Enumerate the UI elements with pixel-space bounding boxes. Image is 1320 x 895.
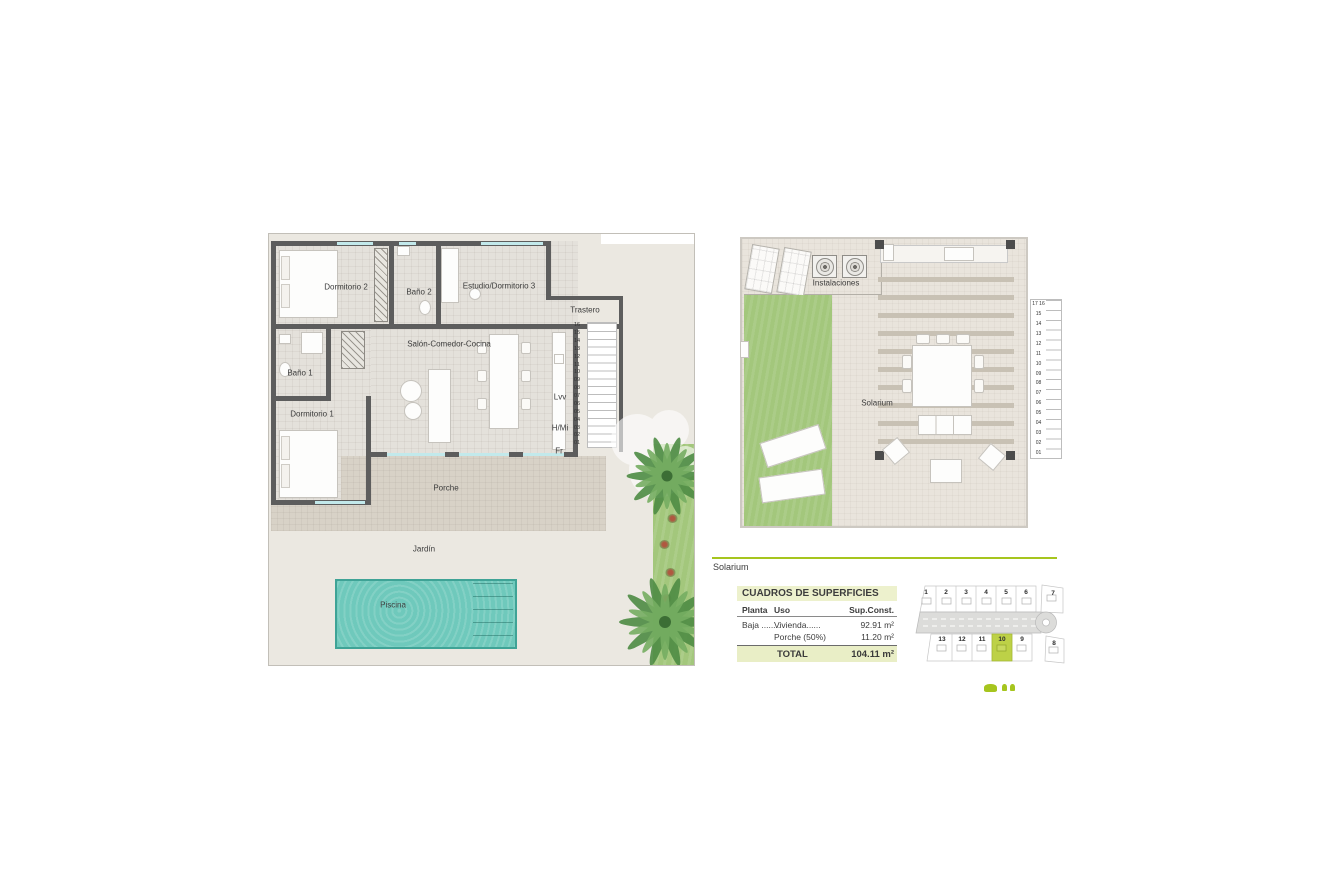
pool xyxy=(335,579,517,649)
chair xyxy=(956,334,970,344)
kitchen-sink xyxy=(554,354,564,364)
pergola-post xyxy=(875,240,884,249)
wall xyxy=(366,396,371,505)
area-label-jardin: Jardín xyxy=(413,545,435,554)
door-marker xyxy=(883,244,894,261)
stair-step-number: 03 xyxy=(1031,428,1046,438)
palm-tree-icon xyxy=(621,430,695,522)
appliance-label-dishwasher: Lvv xyxy=(554,393,566,402)
surface-table-header: CUADROS DE SUPERFICIES xyxy=(737,586,897,601)
stair-step-number: 05 xyxy=(569,409,585,417)
ac-unit-icon xyxy=(812,255,837,278)
room-label-estudio-dormitorio-3: Estudio/Dormitorio 3 xyxy=(463,282,535,291)
pillow xyxy=(281,436,290,460)
coffee-table xyxy=(930,459,962,483)
stair-step-number: 11 xyxy=(569,361,585,369)
room-label-dormitorio-1: Dormitorio 1 xyxy=(290,410,334,419)
door-marker xyxy=(740,341,749,358)
stair-step-number: 15 xyxy=(1031,310,1046,320)
plots-top-row xyxy=(920,586,1036,612)
solarium-plan: 17 16151413121110090807060504030201 Inst… xyxy=(740,237,1062,535)
outdoor-sink xyxy=(944,247,974,261)
fan-icon xyxy=(816,258,834,276)
chair xyxy=(477,398,487,410)
sliding-door-glass xyxy=(387,453,445,456)
room-label-trastero: Trastero xyxy=(570,306,600,315)
chair xyxy=(902,379,912,393)
stair-step-number: 07 xyxy=(569,393,585,401)
stair-step-number: 01 xyxy=(1031,448,1046,458)
stair-step-number: 14 xyxy=(1031,320,1046,330)
plot-number: 1 xyxy=(920,589,932,596)
site-plan: 1 2 3 4 5 6 7 13 12 11 10 9 8 xyxy=(915,583,1065,665)
stair-step-number: 04 xyxy=(1031,419,1046,429)
area-label-piscina: Piscina xyxy=(380,601,406,610)
plot-number-highlighted: 10 xyxy=(996,636,1008,643)
ac-unit-icon xyxy=(842,255,867,278)
cropped-logo-mark-icon xyxy=(1002,684,1007,691)
plot-number: 7 xyxy=(1047,590,1059,597)
stair-step-number: 02 xyxy=(569,432,585,440)
chair xyxy=(521,342,531,354)
pillow xyxy=(281,284,290,308)
outdoor-dining-table xyxy=(912,345,972,407)
row-uso: Porche (50%) xyxy=(774,632,826,642)
col-header-sup-const: Sup.Const. xyxy=(849,605,894,615)
wall xyxy=(271,241,276,505)
stair-step-number: 08 xyxy=(1031,379,1046,389)
room-label-bano-2: Baño 2 xyxy=(406,288,431,297)
stair-step-number: 06 xyxy=(1031,399,1046,409)
appliance-label-oven-micro: H/Mi xyxy=(552,424,568,433)
col-header-planta: Planta xyxy=(742,605,768,615)
stair-step-number: 04 xyxy=(569,417,585,425)
outdoor-sofa xyxy=(918,415,972,435)
wall xyxy=(271,396,331,401)
stair-step-number: 16 xyxy=(569,322,585,330)
stair-step-number: 05 xyxy=(1031,409,1046,419)
room-label-solarium: Solarium xyxy=(861,399,893,408)
room-label-instalaciones: Instalaciones xyxy=(813,279,860,288)
col-header-uso: Uso xyxy=(774,605,790,615)
stair-step-number: 03 xyxy=(569,424,585,432)
chair xyxy=(521,370,531,382)
wall xyxy=(371,452,387,457)
wall xyxy=(509,452,523,457)
area-label-porche: Porche xyxy=(433,484,458,493)
window xyxy=(481,242,543,245)
wardrobe xyxy=(341,331,365,369)
plot-number: 8 xyxy=(1048,640,1060,647)
window xyxy=(399,242,416,245)
cropped-logo-mark-icon xyxy=(1010,684,1015,691)
porch-area xyxy=(341,456,606,531)
porch-area-left xyxy=(271,505,341,531)
stair-step-number: 02 xyxy=(1031,438,1046,448)
stair-step-number: 06 xyxy=(569,401,585,409)
window xyxy=(315,501,365,504)
stair-step-number: 14 xyxy=(569,338,585,346)
round-table xyxy=(400,380,422,402)
floorplan-sheet: 16151413121110090807060504030201 xyxy=(0,0,1320,895)
round-table xyxy=(404,402,422,420)
cropped-logo-mark-icon xyxy=(984,684,997,692)
surface-table-title: CUADROS DE SUPERFICIES xyxy=(742,588,879,599)
row-sup: 92.91 m² xyxy=(860,620,894,630)
sofa xyxy=(428,369,451,443)
plot-number: 12 xyxy=(956,636,968,643)
pergola-post xyxy=(1006,240,1015,249)
wall xyxy=(546,296,623,300)
appliance-label-fridge: Fr xyxy=(555,447,563,456)
wardrobe xyxy=(374,248,388,322)
plot-number: 13 xyxy=(936,636,948,643)
terrace-strip xyxy=(601,234,695,244)
room-label-bano-1: Baño 1 xyxy=(287,369,312,378)
wall xyxy=(445,452,459,457)
room-label-salon-comedor-cocina: Salón-Comedor-Cocina xyxy=(407,340,491,349)
stair-step-number: 12 xyxy=(1031,340,1046,350)
chair xyxy=(916,334,930,344)
stair-step-number: 08 xyxy=(569,385,585,393)
stair-numbers: 17 16151413121110090807060504030201 xyxy=(1031,300,1046,458)
section-divider-line xyxy=(712,557,1057,559)
stair-step-number: 09 xyxy=(1031,369,1046,379)
plot-number: 6 xyxy=(1020,589,1032,596)
wall xyxy=(564,452,578,457)
stair-step-number: 15 xyxy=(569,330,585,338)
chair xyxy=(521,398,531,410)
roundabout-center xyxy=(1043,619,1050,626)
window xyxy=(337,242,373,245)
bath-sink xyxy=(279,334,291,344)
plot-number: 5 xyxy=(1000,589,1012,596)
palm-tree-icon xyxy=(615,572,695,666)
surface-table: CUADROS DE SUPERFICIES Planta Uso Sup.Co… xyxy=(737,586,897,662)
bath-sink xyxy=(397,246,410,256)
toilet xyxy=(419,300,431,315)
stair-step-number: 10 xyxy=(1031,359,1046,369)
total-value: 104.11 m² xyxy=(851,649,894,660)
room-label-dormitorio-2: Dormitorio 2 xyxy=(324,283,368,292)
surface-table-total-row: TOTAL 104.11 m² xyxy=(737,645,897,662)
stair-step-number: 07 xyxy=(1031,389,1046,399)
chair xyxy=(974,355,984,369)
pergola-post xyxy=(875,451,884,460)
pillow xyxy=(281,464,290,488)
stair-step-number: 13 xyxy=(569,346,585,354)
road xyxy=(916,612,1041,633)
chair xyxy=(477,370,487,382)
plot-number: 11 xyxy=(976,636,988,643)
flower-bush-icon xyxy=(659,540,670,549)
stair-step-number: 01 xyxy=(569,440,585,448)
shower xyxy=(301,332,323,354)
chair xyxy=(902,355,912,369)
plot-number: 3 xyxy=(960,589,972,596)
total-label: TOTAL xyxy=(777,649,808,660)
chair xyxy=(974,379,984,393)
plot-number: 9 xyxy=(1016,636,1028,643)
plot-number: 4 xyxy=(980,589,992,596)
stair-step-number: 10 xyxy=(569,369,585,377)
pillow xyxy=(281,256,290,280)
stair-step-number: 11 xyxy=(1031,349,1046,359)
chair xyxy=(936,334,950,344)
wall xyxy=(326,329,331,401)
stair-treads xyxy=(1046,300,1061,458)
pergola-post xyxy=(1006,451,1015,460)
row-sup: 11.20 m² xyxy=(861,632,894,642)
stair-step-number: 12 xyxy=(569,354,585,362)
section-label: Solarium xyxy=(713,562,749,572)
wall xyxy=(389,241,394,329)
wardrobe xyxy=(441,248,459,303)
wall xyxy=(546,241,551,300)
fan-icon xyxy=(846,258,864,276)
stair-step-number: 13 xyxy=(1031,330,1046,340)
stair-step-number: 17 16 xyxy=(1031,300,1046,310)
dining-table xyxy=(489,334,519,429)
pool-steps xyxy=(473,583,513,645)
plot-number: 2 xyxy=(940,589,952,596)
row-uso: Vivienda...... xyxy=(774,620,821,630)
ground-floor-plan: 16151413121110090807060504030201 xyxy=(268,233,695,666)
sliding-door-glass xyxy=(459,453,509,456)
stair-numbers: 16151413121110090807060504030201 xyxy=(569,322,585,448)
table-rule xyxy=(737,616,897,617)
stair-step-number: 09 xyxy=(569,377,585,385)
